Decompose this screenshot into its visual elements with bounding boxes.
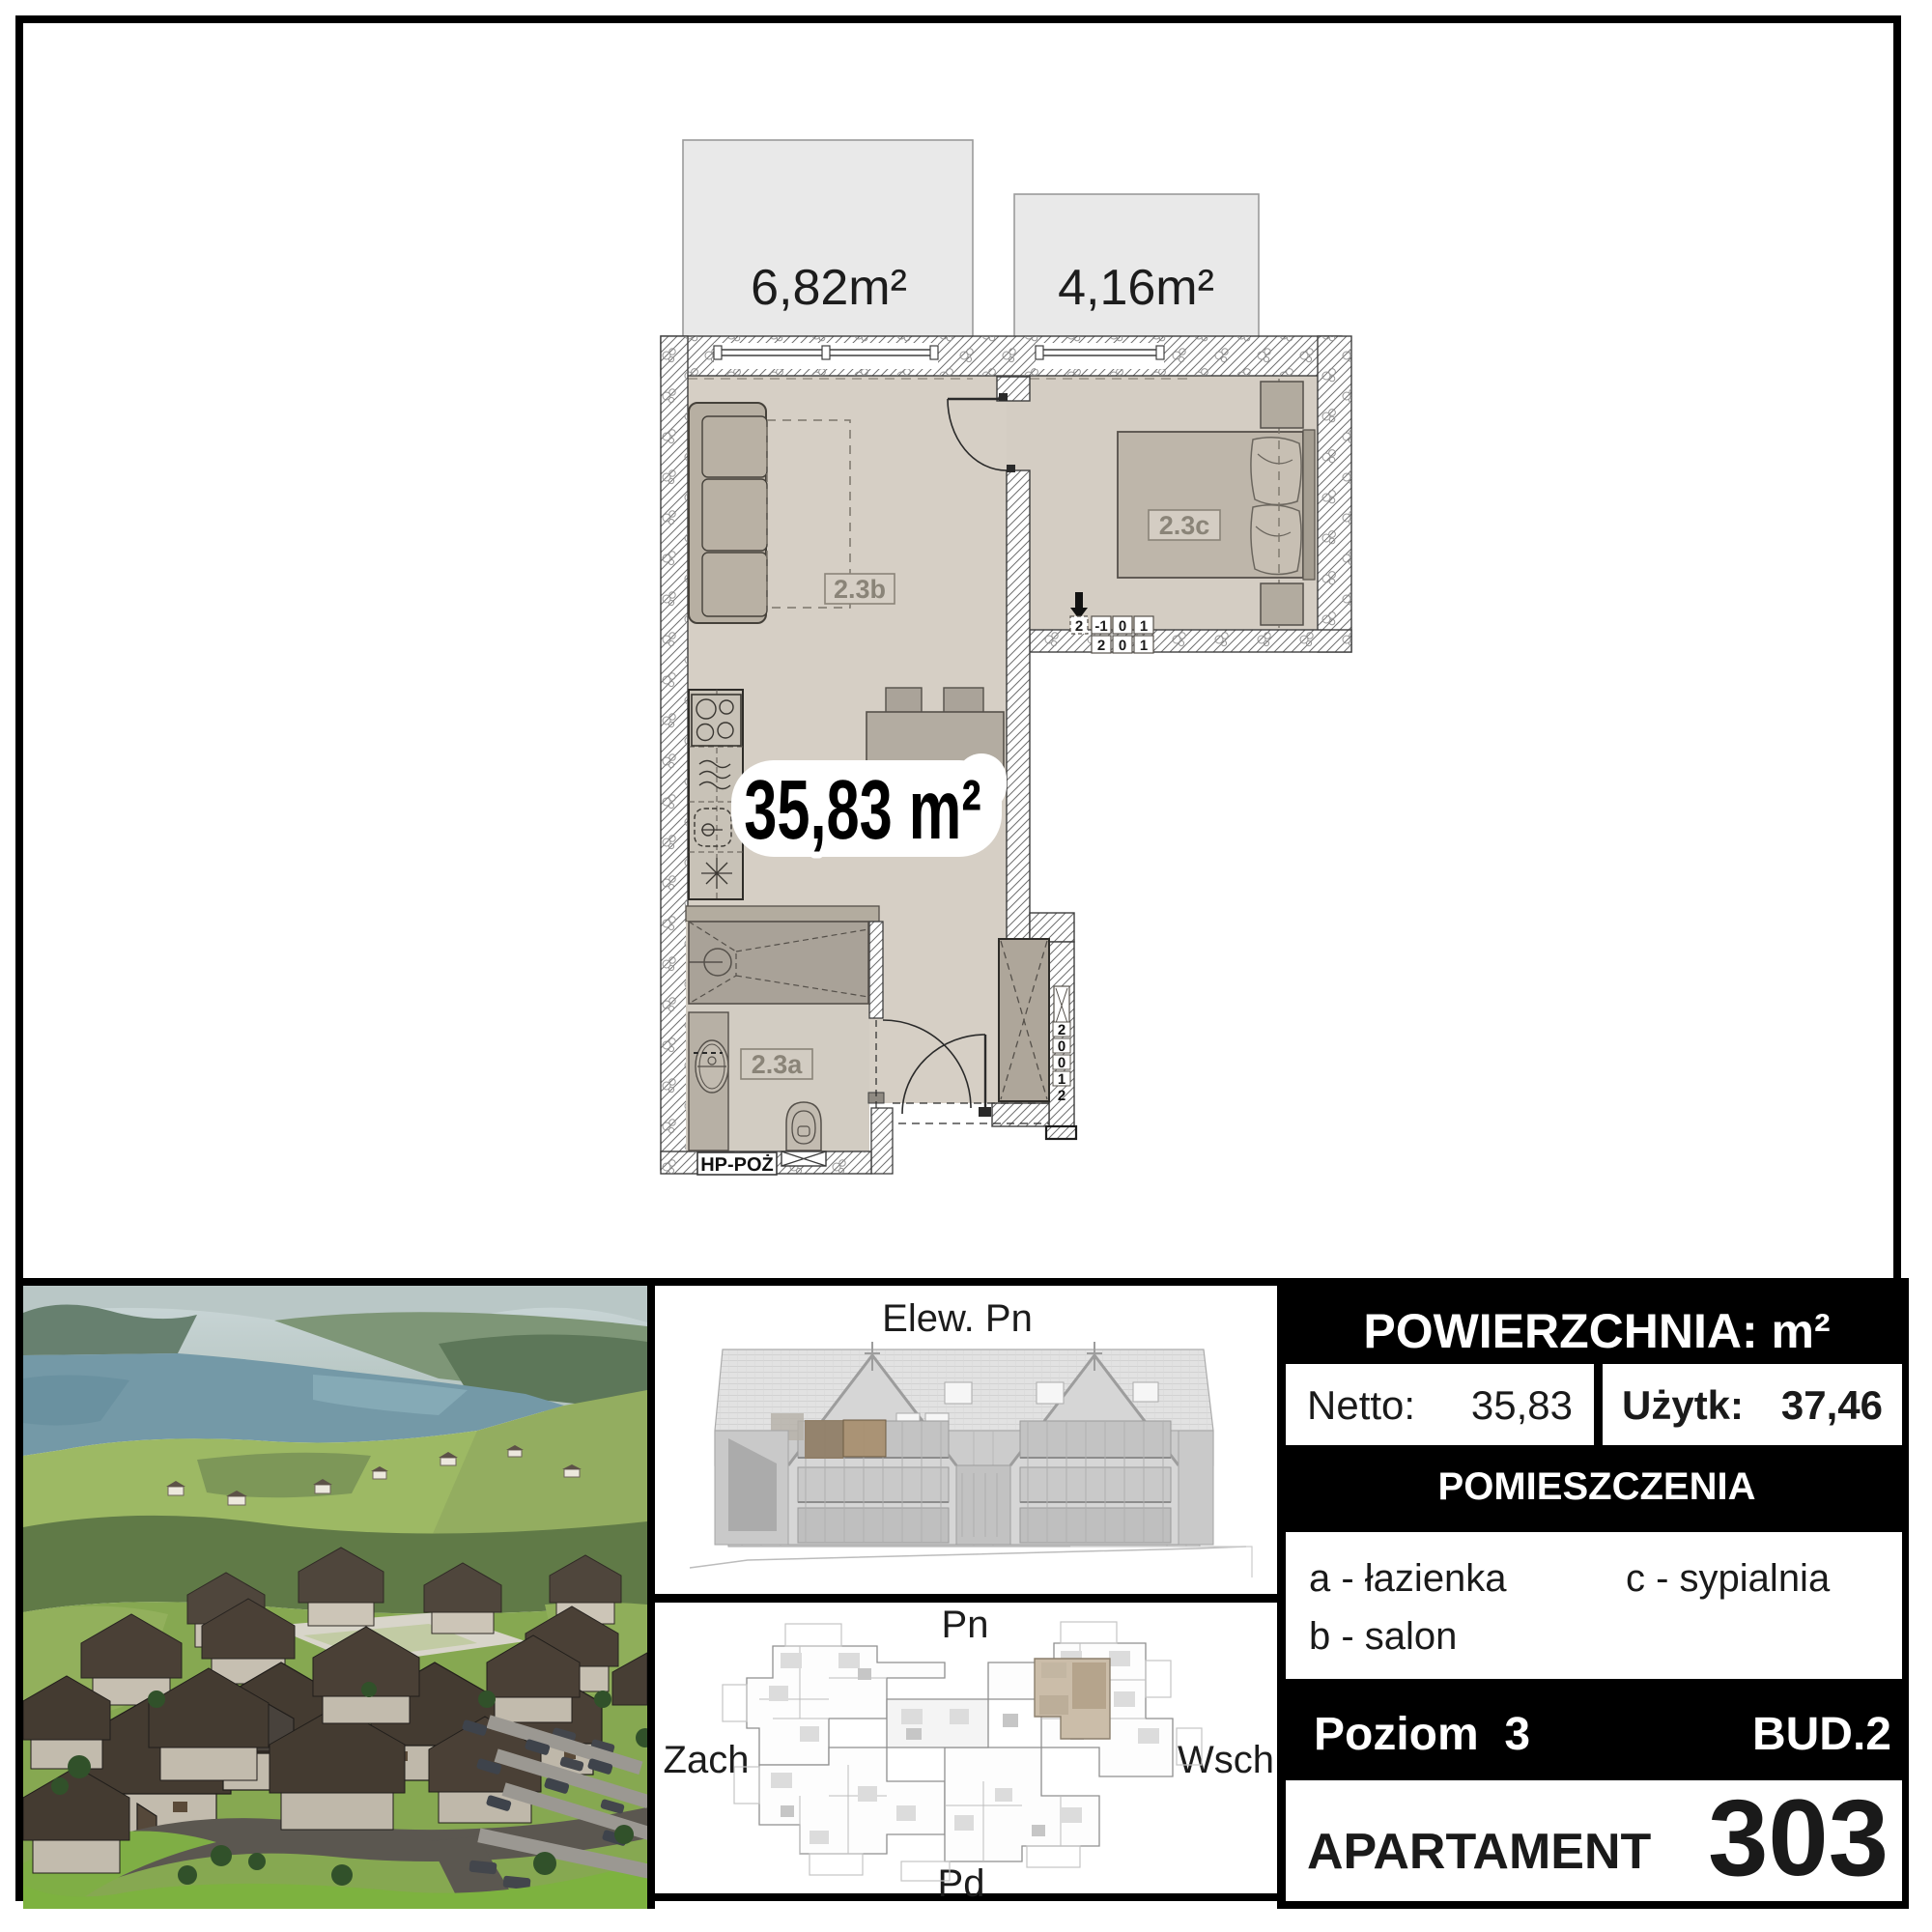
svg-text:6,82m²: 6,82m²: [751, 260, 907, 316]
svg-text:1: 1: [1058, 1071, 1065, 1088]
svg-text:0: 0: [1119, 638, 1126, 654]
svg-text:2.3a: 2.3a: [752, 1050, 804, 1079]
svg-text:1: 1: [1140, 618, 1148, 635]
svg-text:0: 0: [1058, 1055, 1065, 1071]
svg-text:Wsch: Wsch: [1178, 1739, 1274, 1781]
svg-text:2.3c: 2.3c: [1159, 511, 1210, 540]
svg-text:0: 0: [1119, 618, 1126, 635]
svg-text:-1: -1: [1094, 618, 1107, 635]
svg-text:4,16m²: 4,16m²: [1058, 260, 1214, 316]
svg-text:2: 2: [1058, 1022, 1065, 1038]
svg-text:2.3b: 2.3b: [834, 575, 886, 604]
svg-text:Pd: Pd: [938, 1862, 985, 1905]
svg-text:Elew. Pn: Elew. Pn: [882, 1297, 1033, 1340]
svg-text:0: 0: [1058, 1038, 1065, 1055]
svg-text:Zach: Zach: [664, 1739, 750, 1781]
svg-text:1: 1: [1140, 638, 1148, 654]
svg-text:35,83 m²: 35,83 m²: [744, 763, 980, 857]
svg-text:Pn: Pn: [942, 1604, 989, 1646]
svg-text:2: 2: [1097, 638, 1105, 654]
svg-text:2: 2: [1058, 1088, 1065, 1104]
svg-text:HP-POŻ: HP-POŻ: [700, 1153, 774, 1176]
svg-text:2: 2: [1075, 618, 1083, 635]
